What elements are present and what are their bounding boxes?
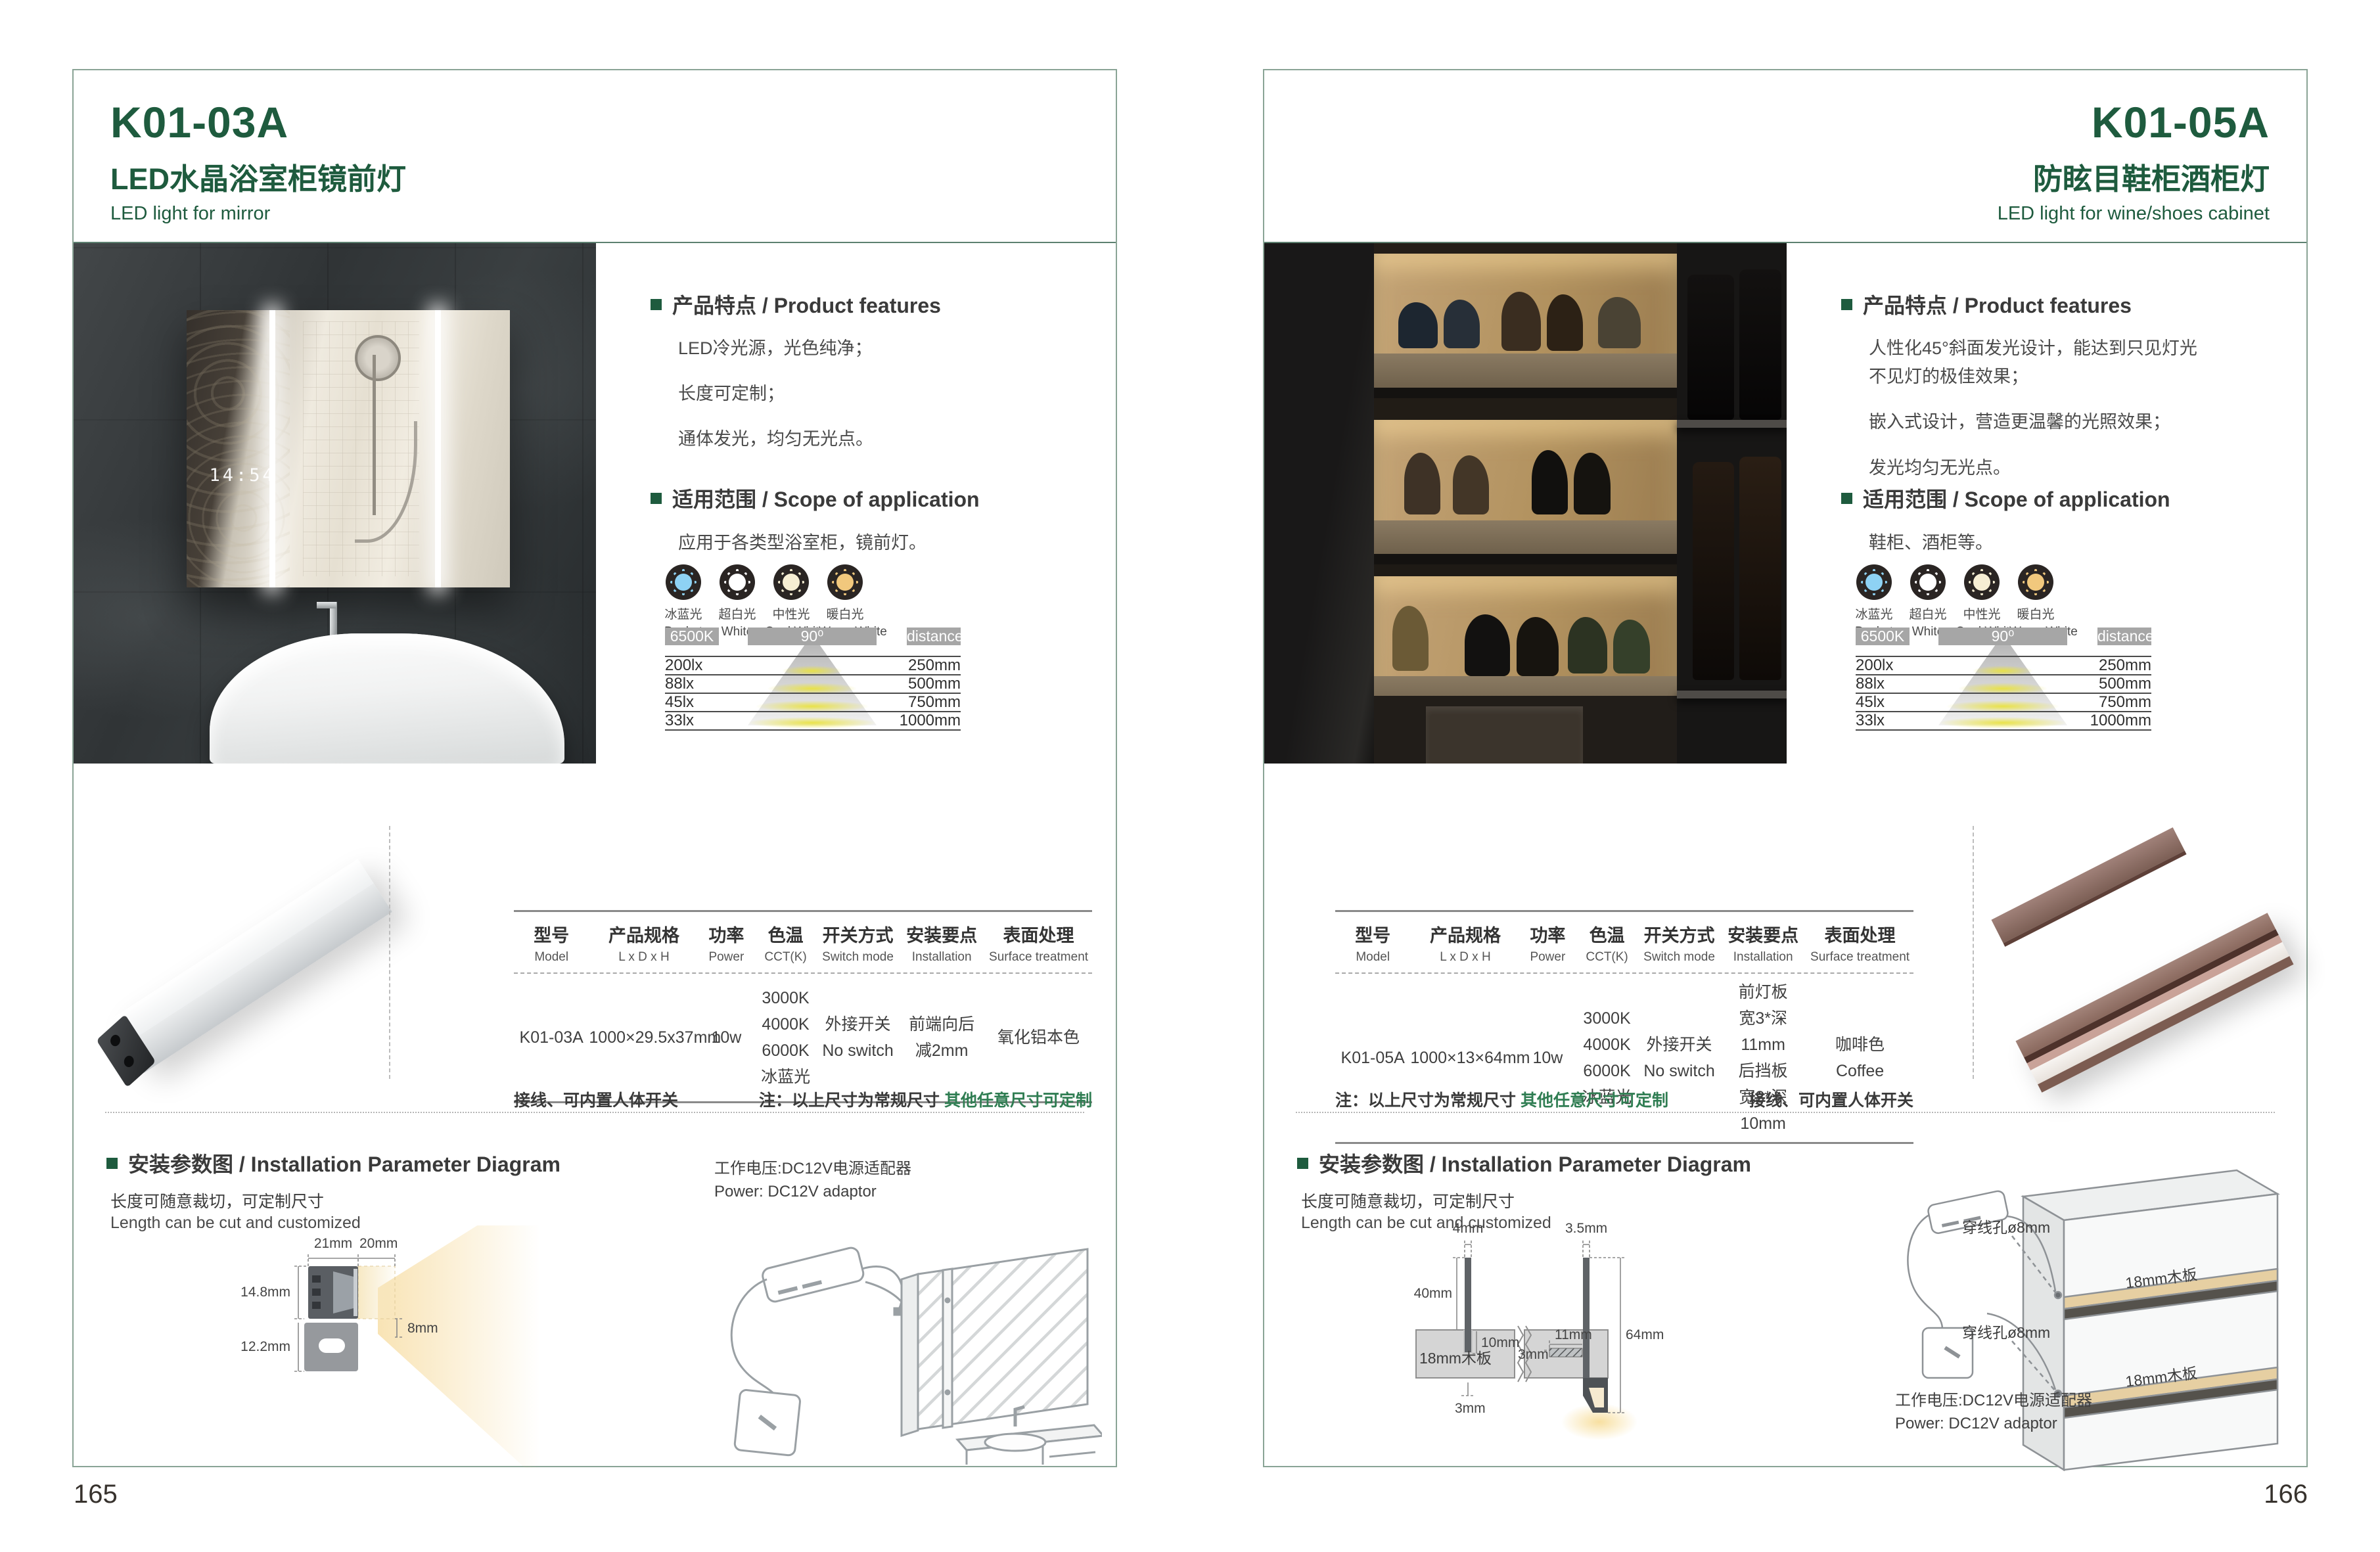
install-heading-label: 安装参数图 / Installation Parameter Diagram [1319, 1148, 1751, 1178]
wiring-note: 接线、可内置人体开关 [1749, 1087, 1913, 1111]
install-heading: 安装参数图 / Installation Parameter Diagram [1297, 1148, 1751, 1178]
sun-icon [1910, 564, 1946, 600]
wire-hole-label: 穿线孔ø8mm [1962, 1320, 2050, 1342]
led-strip-left [269, 310, 275, 587]
scope-heading-label: 适用范围 / Scope of application [1863, 483, 2170, 513]
profile-cross-section-diagram: 21mm 20mm 14.8mm 12.2mm 8mm [225, 1225, 540, 1469]
scope-heading: 适用范围 / Scope of application [651, 483, 980, 513]
green-square-bullet-icon [106, 1158, 118, 1169]
lux-row: 200lx250mm [1856, 656, 2151, 674]
board-label: 18mm木板 [1419, 1346, 1492, 1368]
sun-icon [720, 564, 755, 600]
lux-row: 88lx500mm [1856, 674, 2151, 693]
scope-heading-label: 适用范围 / Scope of application [672, 483, 980, 513]
shelf-front-bar [1374, 388, 1677, 398]
aluminium-led-profile [110, 859, 392, 1073]
page-166-panel: K01-05A 防眩目鞋柜酒柜灯 LED light for wine/shoe… [1263, 69, 2308, 1467]
shoe-cabinet-photo [1264, 243, 1787, 764]
feature-item: LED冷光源，光色纯净； [678, 334, 1099, 363]
table-notes: 注：以上尺寸为常规尺寸 其他任意尺寸可定制 接线、可内置人体开关 [1335, 1087, 1913, 1111]
dotted-divider [105, 1112, 1084, 1113]
cabinet-door [1264, 243, 1374, 764]
dim-20mm: 20mm [359, 1236, 396, 1252]
dim-3mm-strip: 3mm [1518, 1347, 1549, 1363]
page-number-right: 166 [2264, 1480, 2308, 1509]
lux-distance-chart: 6500K 90⁰ distance 200lx250mm 88lx500mm … [1856, 628, 2151, 733]
led-mirror: 14:54 [187, 310, 510, 587]
beam-angle-badge: 90⁰ [1938, 628, 2067, 645]
sun-icon [1856, 564, 1892, 600]
page-number-left: 165 [74, 1480, 118, 1509]
product-profile-image [113, 836, 396, 1079]
lux-row: 45lx750mm [665, 693, 961, 711]
bathroom-mirror-photo: 14:54 [74, 243, 596, 764]
mirror-clock: 14:54 [209, 465, 275, 486]
lux-row: 33lx1000mm [1856, 711, 2151, 731]
product-profile-image [1994, 833, 2283, 1089]
dim-4mm: 4mm [1447, 1221, 1489, 1237]
profile-base [126, 883, 392, 1073]
lux-row: 88lx500mm [665, 674, 961, 693]
spec-table-header: 型号Model 产品规格L x D x H 功率Power 色温CCT(K) 开… [1335, 912, 1913, 974]
shoe-box [1426, 706, 1583, 764]
lux-rows: 200lx250mm 88lx500mm 45lx750mm 33lx1000m… [1856, 656, 2151, 731]
lux-distance-chart: 6500K 90⁰ distance 200lx250mm 88lx500mm … [665, 628, 961, 733]
green-square-bullet-icon [651, 299, 662, 310]
green-square-bullet-icon [651, 493, 662, 504]
size-note: 注：以上尺寸为常规尺寸 其他任意尺寸可定制 [1335, 1087, 1668, 1111]
sun-icon [1964, 564, 2000, 600]
scope-heading: 适用范围 / Scope of application [1841, 483, 2170, 513]
green-square-bullet-icon [1841, 299, 1852, 310]
title-zone-left: K01-03A LED水晶浴室柜镜前灯 LED light for mirror [74, 70, 1116, 243]
feature-item: 通体发光，均匀无光点。 [678, 425, 1099, 453]
sun-icon [666, 564, 701, 600]
spec-table-header: 型号Model 产品规格L x D x H 功率Power 色温CCT(K) 开… [514, 912, 1092, 974]
green-square-bullet-icon [1841, 493, 1852, 504]
install-heading-label: 安装参数图 / Installation Parameter Diagram [128, 1148, 561, 1178]
board-cross-section-diagram: 4mm 3.5mm 40mm 10mm 18mm木板 3mm 11mm 3mm … [1363, 1217, 1731, 1480]
features-heading: 产品特点 / Product features [651, 289, 941, 319]
features-heading-label: 产品特点 / Product features [1863, 289, 2132, 319]
product-title-en: LED light for wine/shoes cabinet [1998, 203, 2270, 225]
lux-row: 33lx1000mm [665, 711, 961, 731]
dim-40mm: 40mm [1397, 1286, 1452, 1302]
dim-21mm: 21mm [308, 1236, 358, 1252]
sun-icon [773, 564, 809, 600]
cut-note-cn: 长度可随意裁切，可定制尺寸 [110, 1189, 324, 1212]
lux-rows: 200lx250mm 88lx500mm 45lx750mm 33lx1000m… [665, 656, 961, 731]
page-165-panel: K01-03A LED水晶浴室柜镜前灯 LED light for mirror… [72, 69, 1117, 1467]
feature-item: 发光均匀无光点。 [1869, 454, 2289, 482]
dashed-divider [389, 826, 390, 1079]
shelf-front-bar [1374, 554, 1677, 564]
lux-row: 200lx250mm [665, 656, 961, 674]
mirror-install-drawing [701, 1195, 1102, 1465]
shower-head-reflection [355, 335, 401, 381]
table-notes: 接线、可内置人体开关 注：以上尺寸为常规尺寸 其他任意尺寸可定制 [514, 1087, 1092, 1111]
dim-64mm: 64mm [1626, 1327, 1664, 1343]
led-strip-right [435, 310, 441, 587]
power-spec-label: 工作电压:DC12V电源适配器 Power: DC12V adaptor [1895, 1390, 2092, 1436]
wiring-note: 接线、可内置人体开关 [514, 1087, 678, 1111]
feature-item: 嵌入式设计，营造更温馨的光照效果； [1869, 408, 2289, 436]
green-square-bullet-icon [1297, 1158, 1308, 1169]
model-code: K01-05A [1998, 97, 2270, 147]
size-note: 注：以上尺寸为常规尺寸 其他任意尺寸可定制 [759, 1087, 1092, 1111]
scope-item: 鞋柜、酒柜等。 [1869, 529, 2289, 557]
distance-badge: distance [907, 628, 961, 645]
shelf-board [1374, 354, 1677, 389]
dim-12.2mm: 12.2mm [230, 1339, 290, 1355]
model-code: K01-03A [110, 97, 406, 147]
lit-shelf-bay [1374, 420, 1677, 555]
dotted-divider [1296, 1112, 2275, 1113]
shelf-board [1374, 520, 1677, 556]
boot-shelf [1677, 420, 1787, 428]
beam-angle-badge: 90⁰ [748, 628, 877, 645]
product-title-en: LED light for mirror [110, 203, 406, 225]
sun-icon [2018, 564, 2053, 600]
spec-table-row: K01-03A 1000×29.5x37mm 10w 3000K 4000K 6… [514, 974, 1092, 1101]
product-title-block: K01-03A LED水晶浴室柜镜前灯 LED light for mirror [110, 97, 406, 225]
features-heading: 产品特点 / Product features [1841, 289, 2132, 319]
spec-table: 型号Model 产品规格L x D x H 功率Power 色温CCT(K) 开… [514, 910, 1092, 1103]
dim-3.5mm: 3.5mm [1565, 1221, 1607, 1237]
lux-row: 45lx750mm [1856, 693, 2151, 711]
sun-icon [827, 564, 863, 600]
feature-item: 人性化45°斜面发光设计，能达到只见灯光 不见灯的极佳效果； [1869, 334, 2289, 391]
product-title-cn: LED水晶浴室柜镜前灯 [110, 155, 406, 198]
dashed-divider [1973, 826, 1974, 1079]
cut-note-cn: 长度可随意裁切，可定制尺寸 [1301, 1189, 1515, 1212]
features-text: LED冷光源，光色纯净； 长度可定制； 通体发光，均匀无光点。 [678, 334, 1099, 471]
cct-badge: 6500K [1856, 628, 1910, 645]
cabinet-install-illustration: 穿线孔ø8mm 穿线孔ø8mm 18mm木板 18mm木板 工作电压:DC12V… [1888, 1156, 2299, 1471]
spec-table-row: K01-05A 1000×13×64mm 10w 3000K 4000K 600… [1335, 974, 1913, 1142]
features-heading-label: 产品特点 / Product features [672, 289, 941, 319]
mirror-install-illustration [701, 1195, 1102, 1465]
dim-11mm: 11mm [1555, 1327, 1592, 1343]
cct-badge: 6500K [665, 628, 719, 645]
lit-shelf-bay [1374, 254, 1677, 389]
product-title-cn: 防眩目鞋柜酒柜灯 [1998, 155, 2270, 198]
coffee-led-profile [2015, 913, 2293, 1093]
distance-badge: distance [2097, 628, 2151, 645]
coffee-cover-profile [1991, 827, 2186, 947]
catalog-spread: K01-03A LED水晶浴室柜镜前灯 LED light for mirror… [0, 0, 2380, 1552]
product-title-block: K01-05A 防眩目鞋柜酒柜灯 LED light for wine/shoe… [1998, 97, 2270, 225]
dim-14.8mm: 14.8mm [230, 1285, 290, 1300]
scope-item: 应用于各类型浴室柜，镜前灯。 [678, 529, 1099, 557]
diffuser [110, 859, 373, 1044]
title-zone-right: K01-05A 防眩目鞋柜酒柜灯 LED light for wine/shoe… [1264, 70, 2306, 243]
boot-shelf [1677, 691, 1787, 698]
wire-hole-label: 穿线孔ø8mm [1962, 1215, 2050, 1237]
install-heading: 安装参数图 / Installation Parameter Diagram [106, 1148, 561, 1178]
dim-3mm-bottom: 3mm [1455, 1401, 1486, 1417]
dim-8mm: 8mm [407, 1321, 438, 1336]
feature-item: 长度可定制； [678, 380, 1099, 408]
lit-shelf-bay [1374, 576, 1677, 712]
features-text: 人性化45°斜面发光设计，能达到只见灯光 不见灯的极佳效果； 嵌入式设计，营造更… [1869, 334, 2289, 499]
